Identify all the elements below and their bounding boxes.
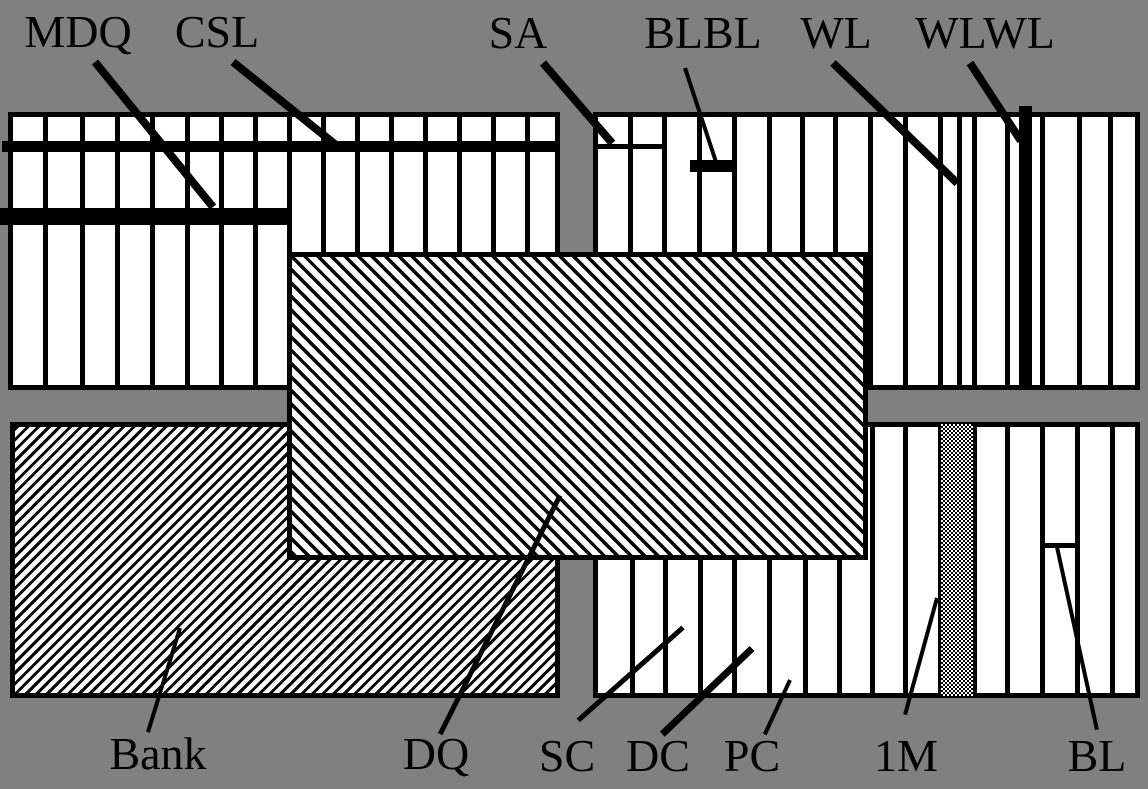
bitline-stripe (972, 117, 977, 385)
label-dc: DC (626, 733, 690, 779)
bitline-stripe (938, 117, 943, 385)
label-sa: SA (489, 10, 548, 56)
csl-bar (2, 141, 558, 152)
bitline-stripe (115, 117, 120, 385)
label-csl: CSL (175, 9, 259, 55)
label-1m: 1M (874, 733, 938, 779)
bitline-stripe (150, 117, 155, 385)
bitline-stripe (1108, 117, 1113, 385)
bitline-stripe (870, 427, 875, 693)
bitline-stripe (1110, 427, 1115, 693)
label-wl: WL (800, 10, 872, 56)
wlwl-bar (1019, 106, 1032, 390)
blbl-tick (690, 160, 733, 172)
bitline-stripe (1040, 427, 1045, 693)
label-sc: SC (539, 733, 595, 779)
mdq-bar (0, 208, 292, 225)
bitline-stripe (1005, 427, 1010, 693)
bitline-stripe (185, 117, 190, 385)
sa-tick (593, 144, 662, 149)
bitline-stripe (957, 117, 962, 385)
dram-floorplan-diagram: MDQCSLSABLBLWLWLWLBankDQSCDCPC1MBL (0, 0, 1148, 789)
bitline-stripe (80, 117, 85, 385)
bitline-stripe (868, 117, 873, 385)
label-blbl: BLBL (644, 10, 762, 56)
block-dq-region (287, 252, 868, 560)
bitline-stripe (253, 117, 258, 385)
bitline-stripe (219, 117, 224, 385)
label-wlwl: WLWL (915, 10, 1055, 56)
bitline-stripe (1005, 117, 1010, 385)
bitline-stripe (1077, 117, 1082, 385)
bitline-stripe (903, 117, 908, 385)
bitline-stripe (43, 117, 48, 385)
bitline-stripe (903, 427, 908, 693)
one-meg-column (941, 424, 973, 696)
label-pc: PC (724, 733, 780, 779)
bitline-stripe (1040, 117, 1045, 385)
label-mdq: MDQ (24, 9, 131, 55)
label-dq: DQ (403, 731, 469, 777)
label-bank: Bank (109, 731, 206, 777)
label-bl: BL (1068, 733, 1127, 779)
